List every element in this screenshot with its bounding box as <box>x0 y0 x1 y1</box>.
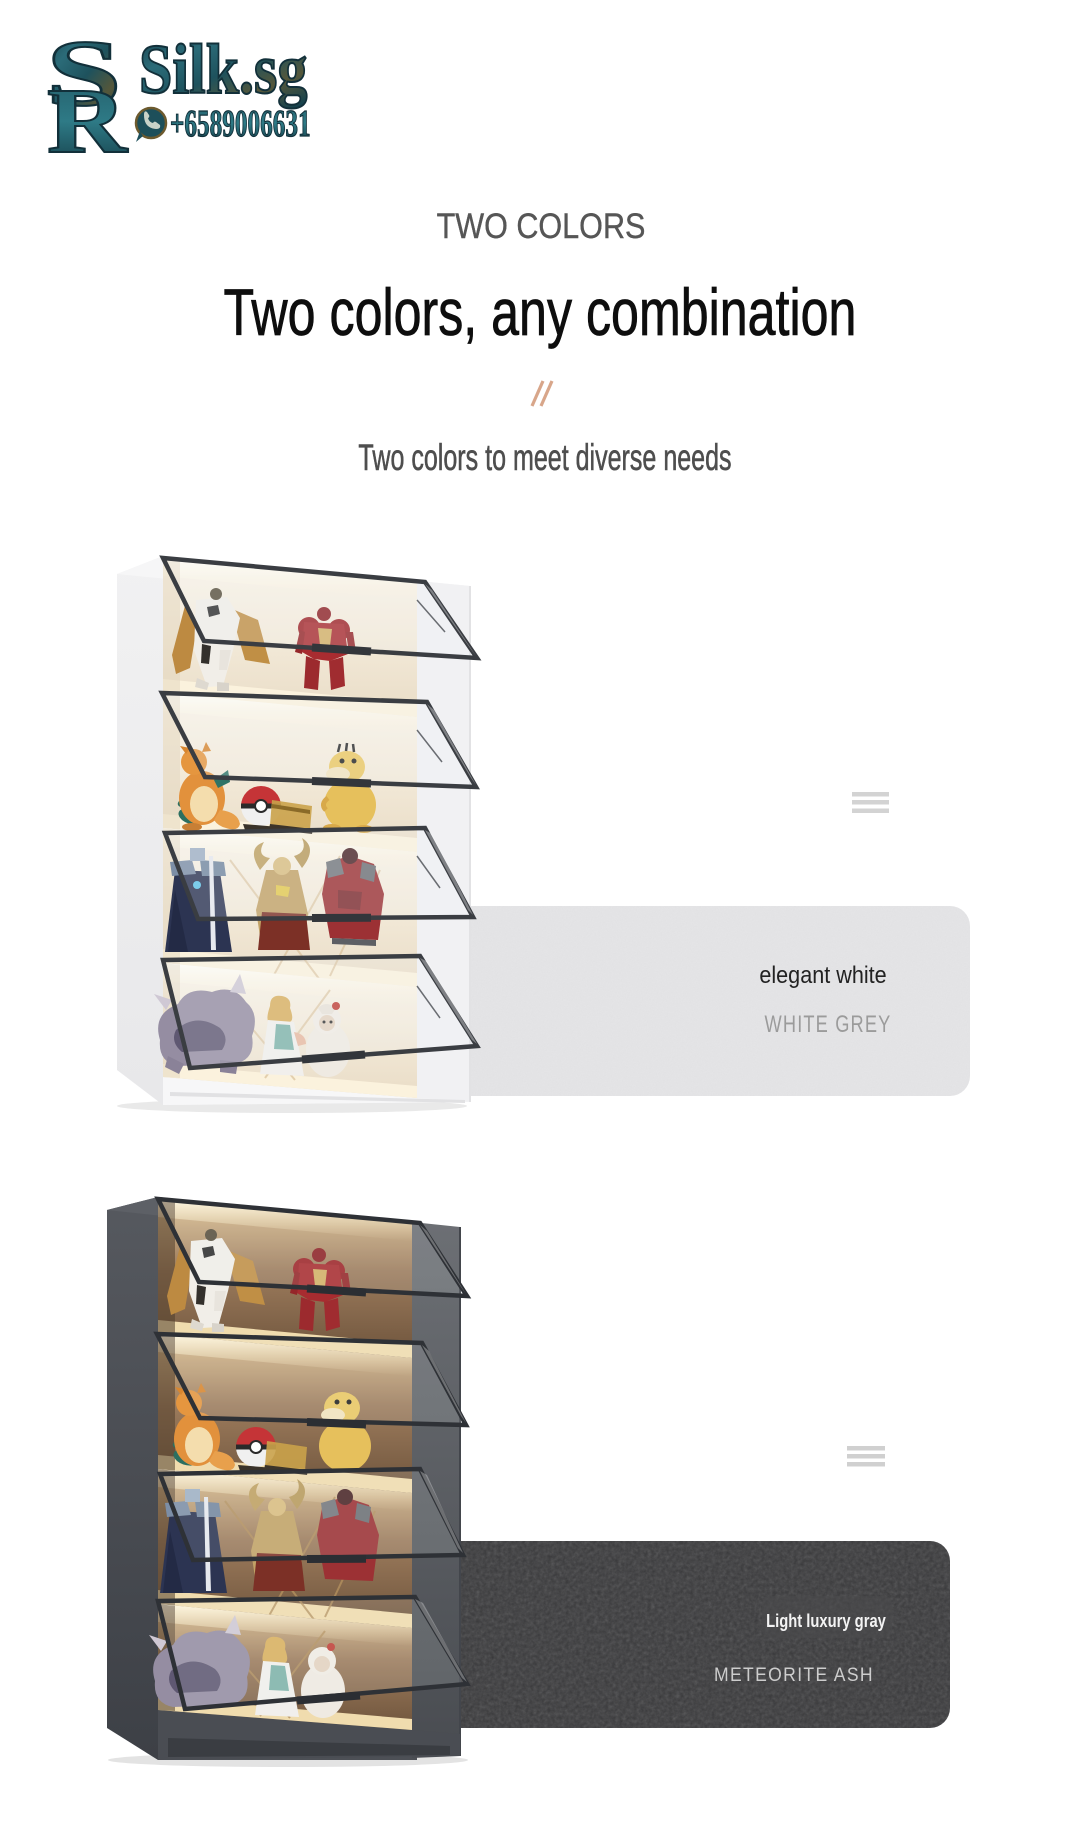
svg-text:+6589006631: +6589006631 <box>170 102 311 144</box>
svg-text:R: R <box>47 70 128 170</box>
svg-text:Silk.sg: Silk.sg <box>139 30 308 109</box>
